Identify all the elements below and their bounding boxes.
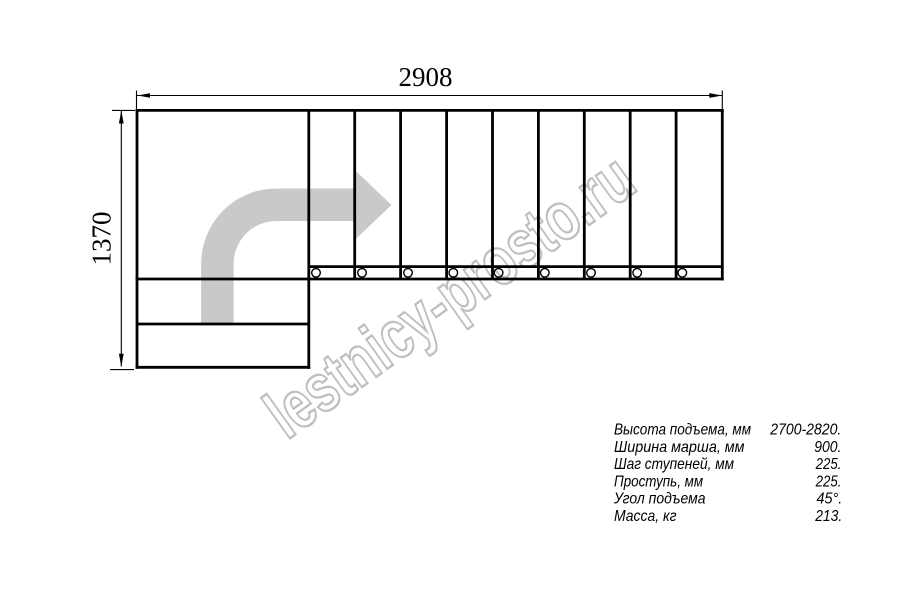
svg-text:213.: 213.	[814, 508, 842, 525]
svg-text:1370: 1370	[87, 212, 117, 266]
svg-text:Масса, кг: Масса, кг	[614, 508, 677, 525]
svg-text:Высота подъема, мм: Высота подъема, мм	[614, 422, 751, 439]
svg-text:Угол подъема: Угол подъема	[613, 491, 705, 508]
svg-text:225.: 225.	[815, 473, 842, 490]
svg-text:Ширина марша, мм: Ширина марша, мм	[614, 439, 745, 456]
svg-text:Проступь, мм: Проступь, мм	[614, 473, 703, 490]
svg-text:900.: 900.	[814, 439, 841, 456]
svg-text:2908: 2908	[399, 62, 453, 92]
svg-text:225.: 225.	[815, 456, 842, 473]
svg-text:Шаг ступеней, мм: Шаг ступеней, мм	[614, 456, 734, 473]
svg-text:45°.: 45°.	[817, 491, 843, 508]
svg-text:2700-2820.: 2700-2820.	[769, 422, 841, 439]
